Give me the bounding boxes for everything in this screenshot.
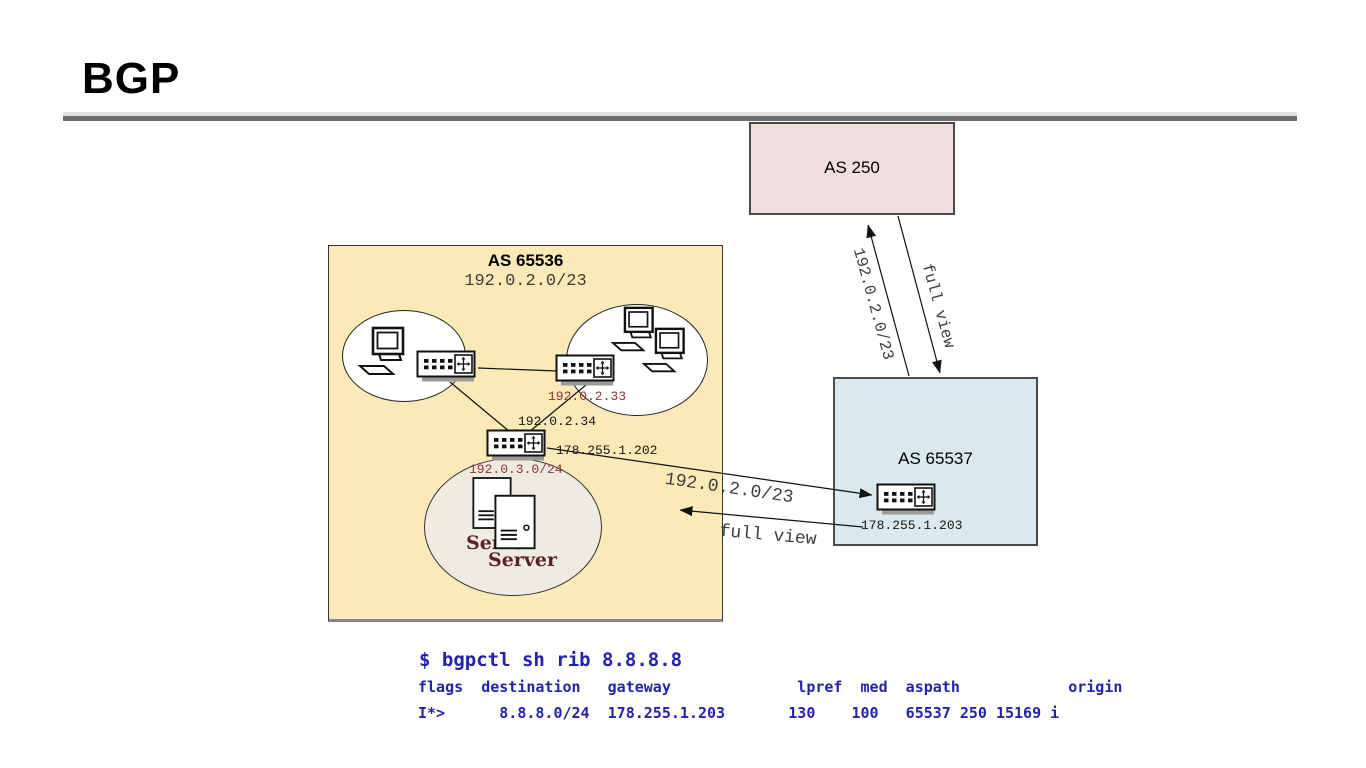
- router-icon: [555, 354, 617, 388]
- arrow-label-announce-up: 192.0.2.0/23: [843, 225, 903, 384]
- slide: BGP Server Server AS 250 AS 65536 192.0.: [0, 0, 1366, 768]
- server-label-front: Server: [488, 549, 557, 571]
- as250-label: AS 250: [749, 158, 955, 178]
- computer-icon: [357, 326, 413, 378]
- as65537-label: AS 65537: [833, 449, 1038, 469]
- computer-icon: [641, 327, 693, 375]
- subnet-label-servers: 192.0.3.0/24: [469, 463, 563, 477]
- router-icon: [876, 483, 938, 517]
- server-icon: [494, 494, 536, 550]
- ip-label-router2: 192.0.2.34: [518, 415, 596, 429]
- terminal-rib-header: flags destination gateway lpref med aspa…: [418, 678, 1122, 696]
- ip-label-router2-wan: 178.255.1.202: [556, 444, 657, 458]
- ip-label-router3: 178.255.1.203: [861, 519, 962, 533]
- arrow-label-fullview-left: full view: [707, 521, 828, 551]
- router-icon: [486, 429, 548, 463]
- terminal-rib-row: I*> 8.8.8.0/24 178.255.1.203 130 100 655…: [418, 704, 1059, 722]
- ip-label-router1: 192.0.2.33: [548, 390, 626, 404]
- page-title: BGP: [82, 54, 180, 104]
- as65536-label: AS 65536: [328, 251, 723, 271]
- arrow-label-fullview-down: full view: [913, 246, 962, 366]
- title-divider: [63, 112, 1297, 121]
- terminal-command: $ bgpctl sh rib 8.8.8.8: [419, 649, 682, 671]
- as65536-prefix: 192.0.2.0/23: [328, 272, 723, 291]
- router-icon: [416, 350, 478, 384]
